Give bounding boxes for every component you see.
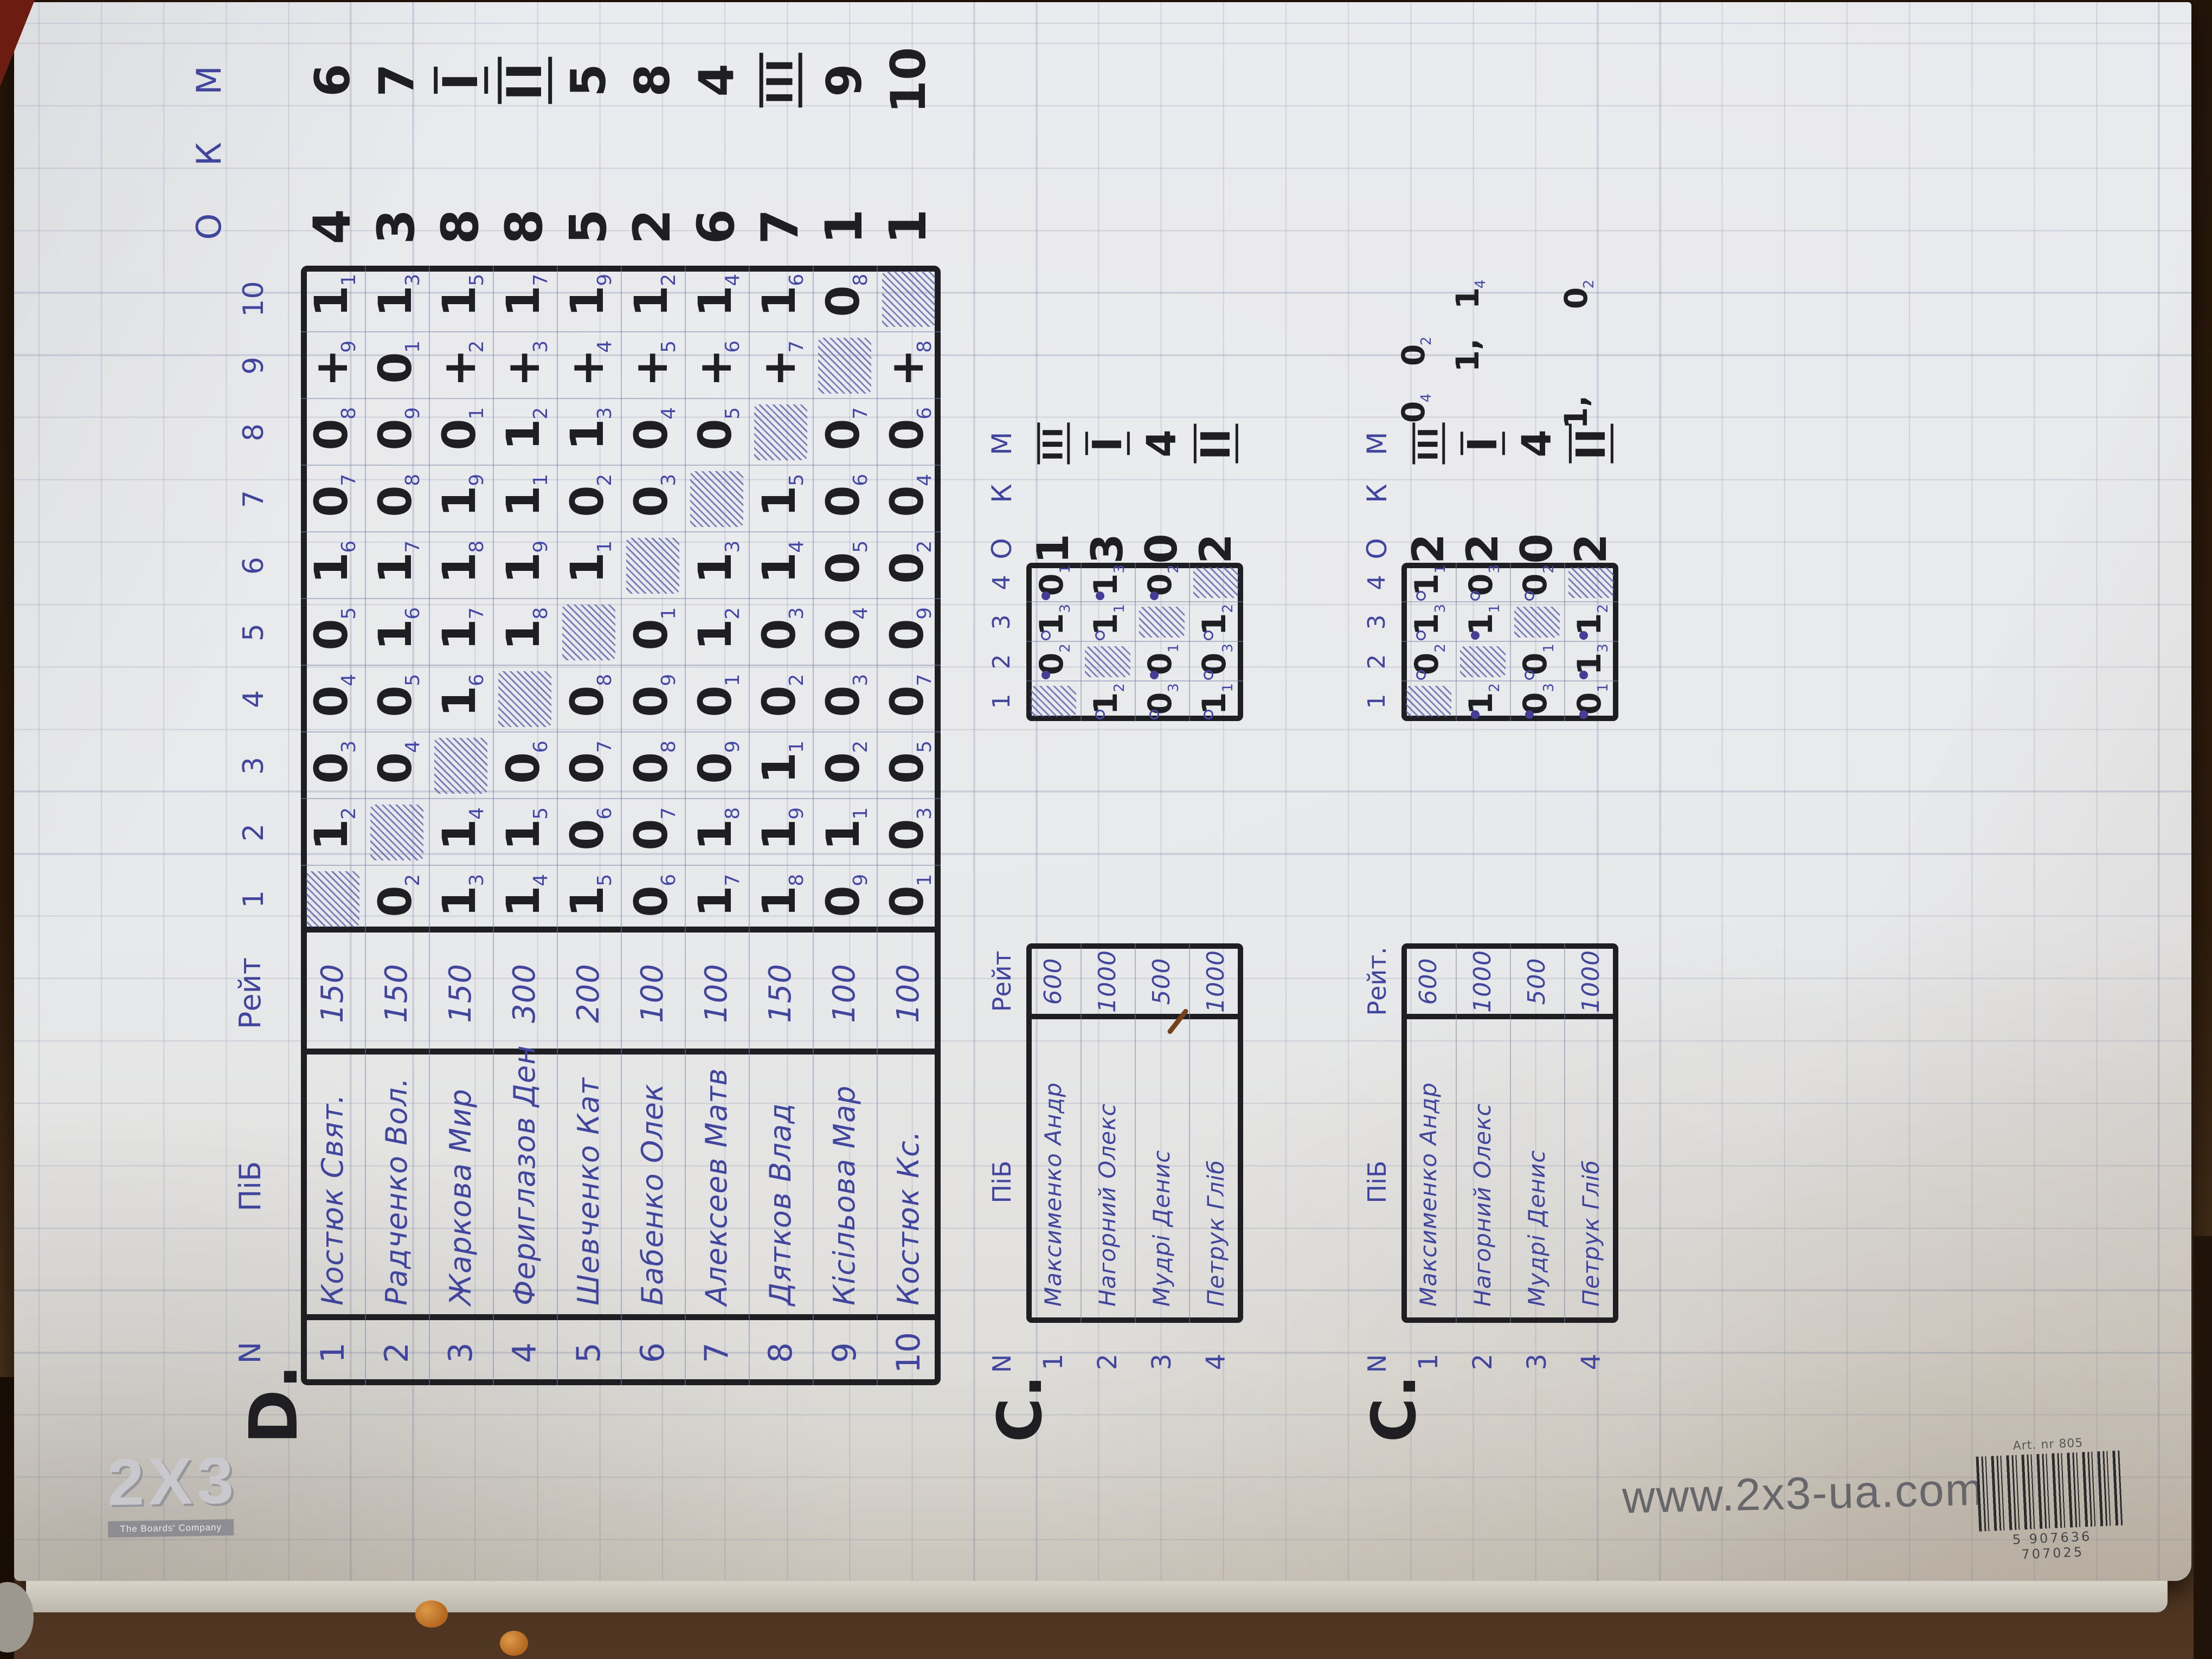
game-result: 1 (1090, 574, 1122, 596)
col-header-place: М (988, 432, 1015, 455)
round-subscript: 1 (403, 340, 423, 353)
score-value: 2 (1194, 533, 1238, 564)
round-subscript: 6 (467, 674, 487, 686)
row-number: 4 (509, 1342, 541, 1363)
score-value: 2 (627, 209, 678, 244)
diagonal-cell (370, 805, 423, 860)
diagonal-cell (562, 605, 615, 660)
diagonal-cell (818, 338, 871, 394)
player-rating: 150 (446, 963, 476, 1023)
color-dot (1470, 591, 1480, 601)
player-name: Петрук Гліб (1205, 1160, 1227, 1307)
color-dot (1471, 631, 1480, 640)
cell-line (1189, 563, 1190, 721)
player-name: Костюк Свят. (318, 1094, 348, 1306)
place-value: II (1194, 423, 1238, 463)
table-label: С. (990, 1375, 1051, 1443)
game-result: 0 (308, 619, 354, 650)
place-value: 6 (309, 63, 357, 97)
game-result: 0 (1036, 653, 1068, 676)
game-result: 0 (436, 419, 482, 450)
game-result: 1 (820, 819, 866, 850)
player-rating: 150 (766, 963, 796, 1023)
score-value: 1 (1032, 533, 1075, 564)
game-result: 0 (308, 485, 354, 517)
game-result: 1 (1036, 613, 1068, 636)
cell-line (429, 266, 430, 1385)
round-subscript: 6 (851, 474, 871, 486)
round-subscript: 4 (595, 340, 615, 353)
game-result: 0 (564, 752, 610, 783)
place-value: 4 (1142, 429, 1182, 458)
game-result: 0 (1519, 692, 1552, 715)
game-result: 1 (756, 885, 802, 917)
round-subscript: 4 (787, 541, 807, 553)
game-result: 1 (500, 285, 546, 317)
diagonal-cell (1460, 646, 1506, 677)
score-value: 1 (883, 209, 934, 244)
extra-result: 0 (1398, 344, 1429, 366)
place-value: III (760, 53, 802, 108)
round-subscript: 3 (1596, 644, 1610, 653)
brand-logo: 2X3 The Boards' Company (107, 1442, 239, 1538)
cell-line (301, 465, 941, 466)
player-name: Бабенко Олек (638, 1083, 667, 1306)
game-result: 0 (820, 752, 866, 783)
player-rating: 1000 (1096, 950, 1120, 1013)
game-result: 1 (564, 419, 610, 450)
round-subscript: 6 (339, 541, 359, 553)
player-name: Алексеев Матв (702, 1068, 731, 1306)
round-subscript: 8 (595, 674, 615, 686)
game-result: 1 (1090, 613, 1122, 636)
row-number: 8 (764, 1342, 797, 1363)
brand-logo-subtitle: The Boards' Company (108, 1519, 234, 1538)
color-dot (1041, 631, 1051, 640)
col-header-place: М (192, 66, 226, 95)
color-dot (1525, 710, 1534, 719)
round-subscript: 7 (595, 741, 615, 753)
game-result: + (628, 349, 674, 387)
game-result: 0 (1036, 574, 1068, 596)
game-result: 1 (436, 685, 482, 717)
color-dot (1149, 710, 1159, 719)
game-result: + (564, 349, 610, 387)
barcode-bars (1976, 1450, 2124, 1532)
game-result: 0 (308, 685, 354, 717)
game-result: 1 (308, 819, 354, 850)
round-subscript: 1 (723, 674, 743, 686)
col-header-koef: К (1364, 484, 1391, 503)
round-subscript: 1 (1433, 564, 1448, 574)
round-subscript: 8 (723, 807, 743, 820)
game-result: 1 (500, 485, 546, 517)
col-header-score: О (988, 538, 1015, 559)
game-result: 1 (756, 285, 802, 317)
game-result: 0 (820, 619, 866, 650)
game-result: 1 (756, 552, 802, 583)
cell-line (1189, 943, 1190, 1323)
cell-line (1510, 943, 1511, 1323)
game-result: + (500, 349, 546, 387)
round-subscript: 5 (531, 807, 551, 820)
barcode-sticker: Art. nr 805 5 907636 707025 (1975, 1435, 2126, 1564)
col-header-koef: К (192, 142, 226, 166)
diagonal-cell (498, 671, 551, 727)
cell-line (1081, 943, 1082, 1323)
col-header-round: 9 (240, 357, 268, 375)
row-number: 10 (892, 1332, 925, 1373)
col-header-round: 2 (1365, 654, 1389, 670)
round-subscript: 4 (723, 274, 743, 286)
player-name: Радченко Вол. (382, 1077, 411, 1306)
color-dot (1579, 631, 1588, 640)
score-value: 5 (563, 209, 614, 244)
extra-result: 1 (1452, 287, 1483, 309)
color-dot (1150, 671, 1159, 679)
score-value: 2 (1461, 533, 1504, 564)
round-subscript: 8 (339, 407, 359, 420)
round-subscript: 8 (467, 541, 487, 553)
table-label: D. (241, 1364, 307, 1444)
round-subscript: 1 (339, 274, 359, 286)
place-value: 4 (693, 63, 741, 97)
score-value: 3 (1086, 533, 1129, 564)
cell-line (557, 266, 558, 1385)
score-value: 7 (755, 209, 806, 244)
round-subscript: 2 (1488, 683, 1502, 692)
game-result: 0 (884, 619, 930, 650)
round-subscript: 7 (723, 874, 743, 886)
player-name: Кісільова Мар (830, 1085, 859, 1306)
player-name: Мудрі Денис (1526, 1150, 1548, 1307)
round-subscript: 7 (467, 607, 487, 620)
cell-line (493, 266, 494, 1385)
round-subscript: 9 (659, 674, 679, 686)
round-subscript: 3 (1167, 683, 1181, 692)
col-header-round: 4 (240, 690, 268, 708)
round-subscript: 3 (787, 607, 807, 620)
player-name: Максименко Андр (1417, 1082, 1440, 1307)
col-header-round: 7 (240, 490, 268, 508)
col-header-koef: К (988, 484, 1015, 503)
row-number: 6 (636, 1342, 669, 1363)
round-subscript: 2 (1167, 564, 1181, 574)
game-result: + (756, 349, 802, 387)
color-dot (1579, 710, 1588, 719)
score-value: 4 (307, 209, 358, 244)
game-result: 1 (500, 552, 546, 583)
place-value: 5 (565, 63, 613, 97)
cell-line (749, 266, 750, 1385)
game-result: 1 (564, 552, 610, 583)
round-subscript: 4 (1419, 394, 1433, 403)
round-subscript: 4 (1474, 280, 1488, 289)
game-result: 1 (436, 619, 482, 650)
game-result: 0 (692, 752, 738, 783)
diagonal-cell (306, 871, 359, 927)
game-result: 0 (884, 552, 930, 583)
round-subscript: 9 (403, 407, 423, 420)
place-value: I (1085, 432, 1130, 455)
diagonal-cell (1193, 567, 1239, 598)
place-value: I (434, 67, 488, 94)
game-result: + (884, 349, 930, 387)
round-subscript: 8 (851, 274, 871, 286)
round-subscript: 3 (723, 541, 743, 553)
cell-line (685, 266, 686, 1385)
cell-line (301, 398, 941, 399)
round-subscript: 5 (595, 874, 615, 886)
extra-result: 0 (1560, 287, 1592, 309)
cell-line (365, 266, 366, 1385)
round-subscript: 7 (531, 274, 551, 286)
game-result: 0 (308, 419, 354, 450)
player-name: Жаркова Мир (446, 1089, 475, 1306)
color-dot (1204, 631, 1213, 640)
round-subscript: 1 (1113, 604, 1127, 613)
game-result: 0 (1144, 574, 1176, 596)
game-result: 1 (692, 552, 738, 583)
diagonal-cell (626, 538, 679, 594)
round-subscript: 9 (467, 474, 487, 486)
game-result: 1 (1465, 692, 1497, 715)
round-subscript: 1 (531, 474, 551, 486)
col-header-round: 5 (240, 623, 268, 641)
round-subscript: 6 (403, 607, 423, 620)
round-subscript: 8 (915, 340, 935, 353)
place-value: 10 (885, 47, 933, 113)
game-result: 0 (372, 352, 418, 383)
game-result: 1 (500, 885, 546, 917)
cell-line (1456, 563, 1457, 721)
round-subscript: 6 (659, 874, 679, 886)
player-rating: 1000 (1204, 950, 1228, 1013)
cell-line (1564, 943, 1565, 1323)
col-header-round: 1 (1365, 694, 1389, 709)
diagonal-cell (882, 271, 935, 327)
round-subscript: 5 (403, 674, 423, 686)
round-subscript: 1 (915, 874, 935, 886)
round-subscript: 3 (1113, 564, 1127, 574)
round-subscript: 1 (1542, 644, 1556, 653)
score-value: 0 (1515, 533, 1559, 564)
brand-url: www.2x3-ua.com (1622, 1463, 1985, 1523)
diagonal-cell (754, 404, 807, 460)
col-header-score: О (1364, 538, 1391, 559)
game-result: 0 (820, 552, 866, 583)
round-subscript: 2 (1221, 604, 1235, 613)
game-result: 0 (692, 419, 738, 450)
cell-line (1456, 943, 1457, 1323)
cell-line (301, 531, 941, 532)
col-header-round: 3 (990, 615, 1014, 630)
color-dot (1204, 710, 1213, 719)
round-subscript: 5 (787, 474, 807, 486)
game-result: 0 (628, 685, 674, 717)
player-rating: 1000 (1579, 950, 1603, 1013)
game-result: 1 (1090, 692, 1122, 715)
color-dot (1579, 671, 1588, 679)
round-subscript: 4 (467, 807, 487, 820)
col-header-round: 4 (990, 575, 1014, 590)
round-subscript: 9 (531, 541, 551, 553)
game-result: 0 (820, 285, 866, 317)
round-subscript: 6 (915, 407, 935, 420)
color-dot (1204, 670, 1213, 680)
game-result: 0 (756, 685, 802, 717)
player-name: Фериглазов Ден (510, 1045, 539, 1306)
round-subscript: 3 (1433, 604, 1448, 613)
player-rating: 500 (1150, 958, 1174, 1005)
col-header-round: 10 (240, 281, 268, 317)
round-subscript: 9 (595, 274, 615, 286)
score-value: 8 (435, 209, 486, 244)
round-subscript: 1 (595, 541, 615, 553)
col-header-rating: Рейт (989, 951, 1014, 1012)
game-result: + (692, 349, 738, 387)
game-result: 1 (692, 619, 738, 650)
round-subscript: 2 (1582, 280, 1596, 289)
diagonal-cell (1085, 646, 1130, 677)
player-rating: 100 (702, 963, 732, 1023)
game-result: 1 (500, 419, 546, 450)
color-dot (1471, 710, 1480, 719)
game-result: 1 (564, 885, 610, 917)
col-header-n: N (989, 1354, 1014, 1373)
brand-logo-text: 2X3 (107, 1442, 239, 1520)
diagonal-cell (434, 738, 487, 794)
round-subscript: 1 (787, 741, 807, 753)
game-result: 1 (756, 819, 802, 850)
game-result: 0 (628, 419, 674, 450)
game-result: 0 (1465, 574, 1497, 596)
col-header-score: О (192, 214, 226, 240)
player-name: Максименко Андр (1042, 1082, 1065, 1307)
game-result: 0 (564, 485, 610, 517)
game-result: 0 (820, 685, 866, 717)
round-subscript: 4 (339, 674, 359, 686)
round-subscript: 2 (1113, 683, 1127, 692)
place-value: 4 (1517, 429, 1557, 458)
cell-line (1564, 563, 1565, 721)
row-number: 2 (381, 1342, 413, 1363)
game-result: 1 (436, 485, 482, 517)
game-result: 0 (756, 619, 802, 650)
cell-line (1135, 943, 1136, 1323)
round-subscript: 2 (467, 340, 487, 353)
col-header-rating: Рейт (236, 957, 265, 1029)
round-subscript: 5 (339, 607, 359, 620)
game-result: 0 (500, 752, 546, 783)
game-result: 0 (1573, 692, 1606, 715)
game-result: 1 (372, 285, 418, 317)
player-rating: 600 (1041, 958, 1065, 1005)
row-number: 9 (828, 1342, 861, 1363)
player-name: Петрук Гліб (1580, 1160, 1603, 1307)
diagonal-cell (1406, 686, 1451, 717)
game-result: 0 (1411, 653, 1443, 676)
player-rating: 150 (318, 963, 348, 1023)
game-result: + (308, 349, 354, 387)
game-result: 1 (500, 619, 546, 650)
round-subscript: 1 (1596, 683, 1610, 692)
place-value: 8 (629, 63, 677, 97)
player-rating: 200 (574, 963, 604, 1023)
round-subscript: 2 (851, 741, 871, 753)
player-name: Мудрі Денис (1150, 1150, 1173, 1307)
round-subscript: 8 (403, 474, 423, 486)
col-header-round: 8 (240, 423, 268, 441)
extra-result: 1, (1452, 338, 1483, 372)
color-dot (1095, 631, 1105, 640)
game-result: 0 (884, 752, 930, 783)
round-subscript: 2 (403, 874, 423, 886)
col-header-round: 3 (240, 757, 268, 775)
round-subscript: 9 (723, 741, 743, 753)
round-subscript: 1 (1167, 644, 1181, 653)
player-rating: 100 (893, 963, 924, 1023)
round-subscript: 3 (1058, 604, 1072, 613)
round-subscript: 6 (723, 340, 743, 353)
color-dot (1416, 591, 1426, 601)
game-result: 1 (1198, 613, 1231, 636)
col-header-round: 4 (1365, 575, 1389, 590)
game-result: 1 (308, 285, 354, 317)
diagonal-cell (1031, 686, 1076, 717)
round-subscript: 5 (659, 340, 679, 353)
game-result: 1 (628, 285, 674, 317)
game-result: 0 (628, 752, 674, 783)
game-result: 0 (308, 752, 354, 783)
diagonal-cell (1139, 607, 1185, 638)
color-dot (1525, 670, 1534, 680)
round-subscript: 1 (1488, 604, 1502, 613)
round-subscript: 4 (851, 607, 871, 620)
score-value: 8 (499, 209, 550, 244)
round-subscript: 2 (595, 474, 615, 486)
col-header-round: 1 (240, 890, 268, 908)
round-subscript: 7 (851, 407, 871, 420)
round-subscript: 6 (787, 274, 807, 286)
row-number: 1 (317, 1342, 349, 1363)
round-subscript: 9 (339, 340, 359, 353)
game-result: 0 (372, 419, 418, 450)
round-subscript: 2 (1596, 604, 1610, 613)
game-result: 1 (692, 819, 738, 850)
game-result: 0 (820, 885, 866, 917)
game-result: 0 (628, 819, 674, 850)
score-value: 2 (1570, 533, 1613, 564)
game-result: 0 (372, 752, 418, 783)
round-subscript: 1 (851, 807, 871, 820)
round-subscript: 8 (531, 607, 551, 620)
player-rating: 100 (829, 963, 860, 1023)
round-subscript: 3 (1488, 564, 1502, 574)
photo-of-flipchart-sheet: D.NПіБРейт12345678910ОКМ1Костюк Свят.150… (0, 0, 2212, 1659)
game-result: 0 (628, 485, 674, 517)
game-result: 1 (756, 485, 802, 517)
player-name: Нагорний Олекс (1471, 1103, 1494, 1307)
row-number: 4 (1203, 1354, 1229, 1371)
color-dot (1416, 631, 1426, 640)
game-result: 1 (436, 819, 482, 850)
game-result: 0 (628, 619, 674, 650)
row-number: 5 (573, 1342, 605, 1363)
col-header-name: ПіБ (1365, 1161, 1390, 1204)
player-rating: 600 (1417, 958, 1441, 1005)
game-result: 0 (1144, 692, 1176, 715)
